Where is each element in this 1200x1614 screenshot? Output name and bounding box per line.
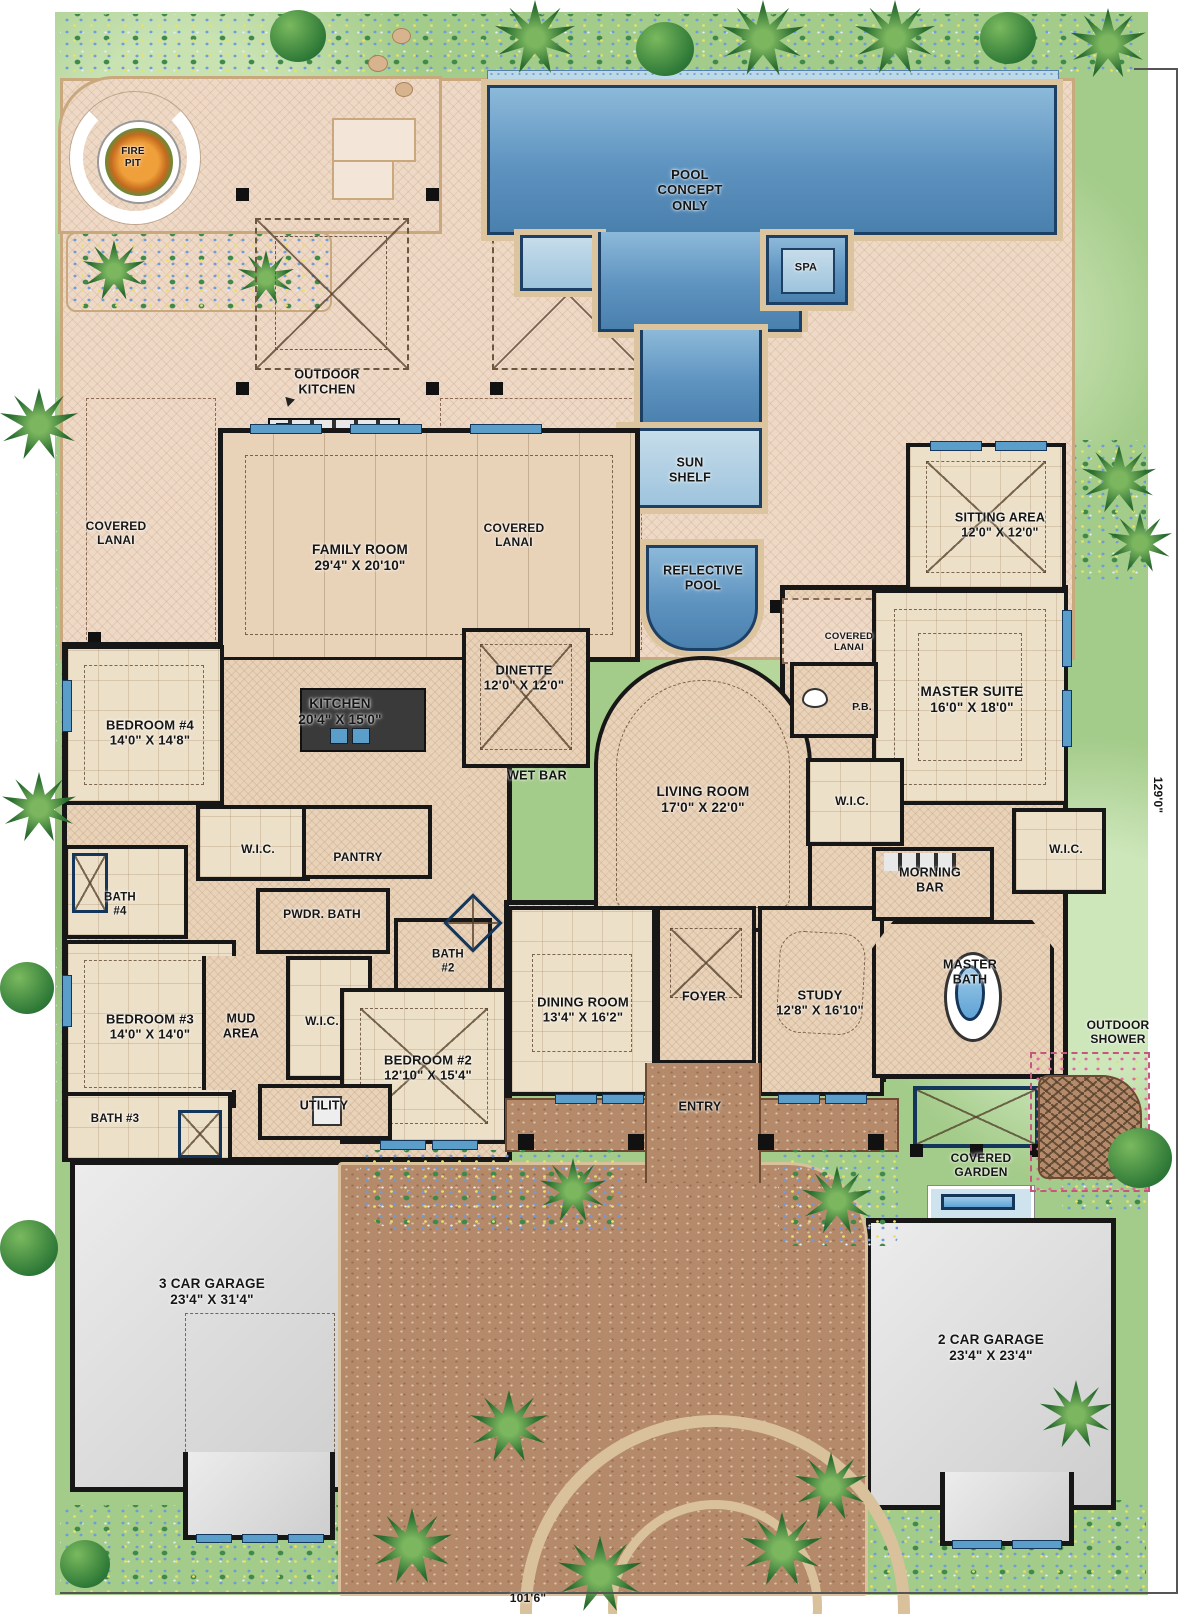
label-bath-4: BATH #4: [104, 891, 136, 918]
label-bedroom-4: BEDROOM #4 14'0" X 14'8": [106, 718, 194, 749]
label-wic-master-left: W.I.C.: [835, 794, 869, 808]
label-bedroom-2: BEDROOM #2 12'10" X 15'4": [384, 1053, 472, 1084]
label-wic-bed2: W.I.C.: [305, 1014, 339, 1028]
label-pantry: PANTRY: [333, 850, 382, 864]
label-covered-garden: COVERED GARDEN: [951, 1151, 1012, 1179]
label-mud-area: MUD AREA: [223, 1011, 259, 1041]
label-dim-right: 129'0": [1151, 777, 1165, 813]
label-living-room: LIVING ROOM 17'0" X 22'0": [657, 784, 750, 816]
label-bath-2: BATH #2: [432, 948, 464, 975]
label-fire-pit: FIRE PIT: [121, 146, 145, 170]
label-covered-lanai-small: COVERED LANAI: [825, 631, 873, 653]
label-foyer: FOYER: [682, 990, 726, 1005]
label-outdoor-shower: OUTDOOR SHOWER: [1087, 1018, 1150, 1046]
label-pb: P.B.: [852, 701, 872, 713]
label-family-room: FAMILY ROOM 29'4" X 20'10": [312, 542, 408, 574]
label-morning-bar: MORNING BAR: [899, 865, 961, 895]
label-bedroom-3: BEDROOM #3 14'0" X 14'0": [106, 1012, 194, 1043]
label-entry: ENTRY: [679, 1100, 722, 1115]
label-kitchen: KITCHEN 20'4" X 15'0": [298, 696, 381, 728]
label-pool-concept: POOL CONCEPT ONLY: [658, 167, 723, 213]
label-dining-room: DINING ROOM 13'4" X 16'2": [537, 995, 629, 1026]
labels-layer: FIRE PITPOOL CONCEPT ONLYSPAOUTDOOR KITC…: [0, 0, 1200, 1614]
label-pwdr-bath: PWDR. BATH: [283, 907, 361, 921]
label-outdoor-kitchen: OUTDOOR KITCHEN: [294, 367, 359, 397]
label-utility: UTILITY: [300, 1099, 349, 1114]
label-covered-lanai-mid: COVERED LANAI: [484, 521, 545, 549]
label-spa: SPA: [795, 262, 817, 275]
label-garage-3: 3 CAR GARAGE 23'4" X 31'4": [159, 1276, 265, 1308]
floor-plan-canvas: FIRE PITPOOL CONCEPT ONLYSPAOUTDOOR KITC…: [0, 0, 1200, 1614]
label-reflective-pool: REFLECTIVE POOL: [663, 563, 743, 593]
label-wet-bar: WET BAR: [507, 769, 567, 784]
label-wic-master-right: W.I.C.: [1049, 842, 1083, 856]
label-garage-2: 2 CAR GARAGE 23'4" X 23'4": [938, 1332, 1044, 1364]
label-master-suite: MASTER SUITE 16'0" X 18'0": [921, 684, 1024, 716]
label-sitting-area: SITTING AREA 12'0" X 12'0": [955, 510, 1045, 540]
label-dinette: DINETTE 12'0" X 12'0": [484, 663, 564, 694]
label-master-bath: MASTER BATH: [943, 957, 997, 987]
label-bath-3: BATH #3: [91, 1113, 139, 1127]
label-dim-bottom: 101'6": [510, 1591, 546, 1605]
label-covered-lanai-left: COVERED LANAI: [86, 519, 147, 547]
label-sun-shelf: SUN SHELF: [669, 455, 711, 485]
label-study: STUDY 12'8" X 16'10": [776, 988, 864, 1019]
label-wic-bed4: W.I.C.: [241, 842, 275, 856]
